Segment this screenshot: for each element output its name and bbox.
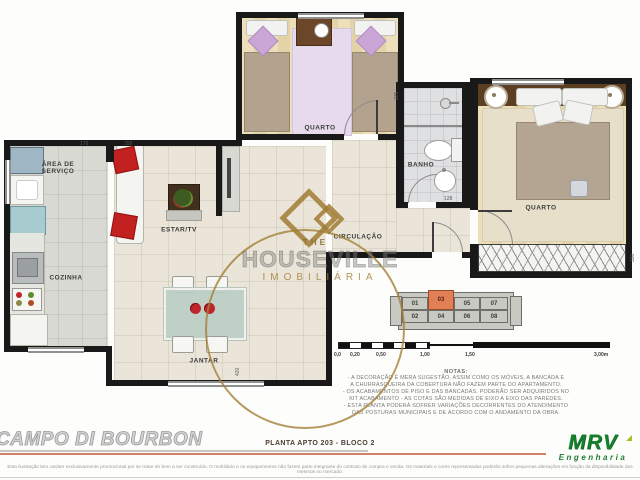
room-label-banho: BANHO — [408, 162, 434, 169]
legal-disclaimer: Esta ilustração tem caráter exclusivamen… — [0, 465, 640, 475]
teddy-bear — [570, 180, 588, 197]
dim-label: 225 — [394, 92, 400, 100]
mrv-logo-text: MRV — [548, 433, 638, 453]
wall — [462, 252, 470, 258]
wall — [106, 146, 114, 162]
laundry-basin — [16, 180, 38, 200]
tv-partition-wall — [216, 142, 222, 216]
door-leaf — [376, 100, 378, 134]
room-label-estar: ESTAR/TV — [161, 227, 197, 234]
unit-01: 01 — [402, 297, 428, 310]
double-bed — [516, 122, 610, 200]
washing-tank — [10, 206, 46, 235]
wall — [470, 244, 478, 278]
watermark-subtitle: IMOBILIÁRIA — [250, 272, 390, 283]
room-label-quarto1: QUARTO — [304, 125, 335, 132]
wall — [398, 82, 470, 88]
window — [492, 79, 564, 85]
tv — [227, 158, 231, 198]
wall — [4, 140, 242, 146]
unit-06: 06 — [454, 310, 480, 323]
entry-door-leaf — [432, 222, 434, 252]
window — [298, 13, 364, 19]
scale-label: 3,00m — [594, 352, 608, 358]
wall — [236, 12, 242, 146]
red-armchair — [111, 146, 139, 174]
wall — [470, 272, 632, 278]
clock — [314, 23, 329, 38]
dim-label: 258 — [124, 141, 132, 147]
toilet-bowl — [424, 140, 453, 161]
unit-07: 07 — [480, 297, 508, 310]
page-bottom-edge — [0, 477, 640, 478]
wall — [236, 134, 344, 140]
scale-label: 1,50 — [465, 352, 475, 358]
unit-03-highlighted: 03 — [428, 290, 454, 310]
faucet — [442, 168, 446, 172]
fridge — [10, 314, 48, 346]
wall — [396, 202, 408, 208]
window — [28, 347, 84, 353]
dim-label: 128 — [444, 196, 452, 202]
scale-label: 1,00 — [420, 352, 430, 358]
shower-head — [440, 98, 451, 109]
unit-02: 02 — [402, 310, 428, 323]
wall — [436, 202, 470, 208]
plan-reference: PLANTA APTO 203 - BLOCO 2 — [230, 440, 410, 447]
unit-04: 04 — [428, 310, 454, 323]
tv-panel — [222, 146, 240, 212]
wall — [470, 78, 478, 210]
window — [5, 160, 11, 204]
wardrobe — [478, 244, 626, 272]
mrv-logo: MRV Engenharia — [548, 433, 638, 462]
unit-08: 08 — [480, 310, 508, 323]
floorplan-page: ÁREA DE SERVIÇO COZINHA ESTAR/TV JANTAR … — [0, 0, 640, 480]
wall — [462, 82, 470, 208]
door-leaf — [478, 210, 512, 212]
stove-burner — [28, 292, 34, 298]
wall — [626, 78, 632, 278]
stove-burner — [28, 300, 34, 306]
wall — [398, 12, 404, 88]
project-title: CAMPO DI BOURBON — [0, 429, 202, 451]
red-armchair — [110, 212, 138, 240]
mrv-logo-subtext: Engenharia — [548, 453, 638, 462]
unit-05: 05 — [454, 297, 480, 310]
round-side-table — [484, 85, 508, 109]
sink-basin — [17, 258, 38, 277]
shower-divider — [404, 125, 462, 127]
shelf — [166, 210, 202, 221]
room-label-quarto2: QUARTO — [525, 205, 556, 212]
scale-thin-segment — [428, 344, 473, 346]
flower-centerpiece — [190, 303, 201, 314]
dim-label: 330 — [630, 254, 636, 262]
wall — [396, 82, 404, 208]
scale-thick-segment — [473, 342, 610, 348]
room-label-cozinha: COZINHA — [49, 275, 82, 282]
stove-burner — [16, 300, 22, 306]
footer-gray-rule — [0, 450, 368, 452]
single-bed — [244, 52, 290, 132]
plant — [174, 189, 191, 206]
dim-label: 178 — [80, 141, 88, 147]
washing-machine — [10, 147, 44, 174]
dining-chair — [172, 336, 194, 353]
building-key-plan: 01 03 05 07 02 04 06 08 — [390, 284, 520, 334]
bathroom-sink — [434, 170, 456, 192]
footer-salmon-rule — [0, 453, 546, 455]
shower-arm — [449, 102, 459, 104]
mrv-logo-wedge-icon — [626, 435, 632, 441]
stove-burner — [16, 292, 22, 298]
keyplan-endcap — [510, 296, 522, 326]
room-label-area-servico: ÁREA DE SERVIÇO — [42, 161, 75, 175]
watermark-brand: HOUSEVILLE — [232, 246, 408, 273]
